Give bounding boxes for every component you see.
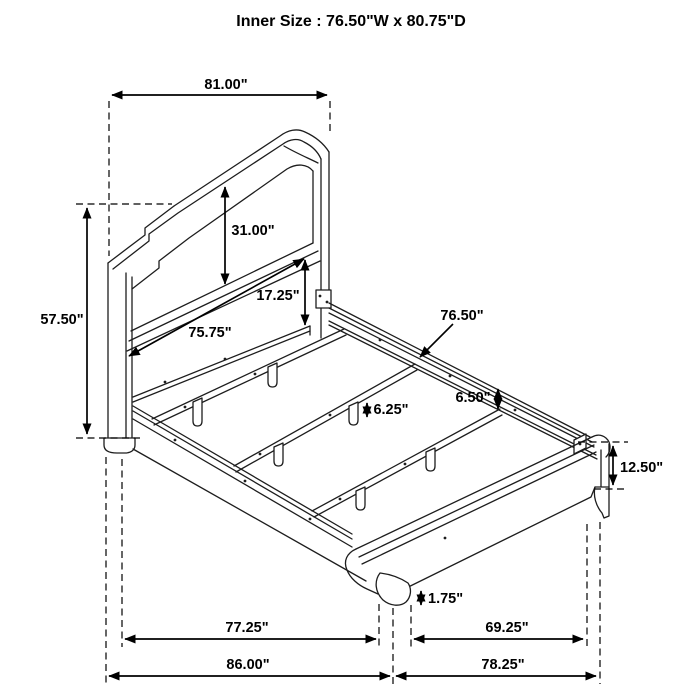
screw-hole <box>244 480 247 483</box>
dim-footboard-outer-width: 78.25" <box>396 657 596 676</box>
footboard-bottom-edge <box>384 487 595 599</box>
leader-line <box>420 324 453 357</box>
rail-cleat-top <box>329 321 596 455</box>
dim-overall-depth: 86.00" <box>109 657 390 676</box>
footboard-right-foot <box>594 487 609 518</box>
diagram-title: Inner Size : 76.50"W x 80.75"D <box>236 13 466 30</box>
screw-hole <box>184 406 187 409</box>
rail-molding <box>133 419 352 547</box>
slat-leg <box>356 487 365 510</box>
dim-inner-depth: 77.25" <box>125 620 376 639</box>
dim-footboard-inner-width: 69.25" <box>414 620 583 639</box>
slat-leg <box>268 363 277 387</box>
dim-label-headboard-height: 57.50" <box>40 312 83 328</box>
dim-label-footboard-inner-width: 69.25" <box>485 620 528 636</box>
slat-leg <box>426 448 435 471</box>
dim-label-headboard-width: 81.00" <box>204 77 247 93</box>
dim-headboard-width: 81.00" <box>109 77 330 256</box>
dim-footboard-height: 12.50" <box>578 442 663 489</box>
dim-label-panel-to-rail: 17.25" <box>256 288 299 304</box>
screw-hole <box>339 498 342 501</box>
dimensions-layer: 81.00" 57.50" 31.00" 17.25" 75.75" 76.50… <box>40 77 663 684</box>
rail-bottom-edge <box>133 449 366 581</box>
dim-foot-height: 1.75" <box>421 591 463 607</box>
screw-hole <box>254 373 257 376</box>
dim-label-panel-height: 31.00" <box>231 223 274 239</box>
dim-label-leg-height: 6.25" <box>373 402 408 418</box>
footboard-top-edge <box>356 437 592 549</box>
headboard-outline <box>108 206 174 263</box>
screw-hole <box>259 453 262 456</box>
dim-label-inner-depth: 77.25" <box>225 620 268 636</box>
slat-bottom <box>236 370 417 472</box>
dim-panel-to-rail: 17.25" <box>256 260 305 325</box>
dim-rail-length: 75.75" <box>129 259 304 356</box>
screw-hole <box>379 339 382 342</box>
screw-hole <box>449 375 452 378</box>
headboard-panel-bottom <box>131 243 313 331</box>
footboard-molding <box>359 445 594 557</box>
bed-dimension-diagram: Inner Size : 76.50"W x 80.75"D <box>0 0 700 700</box>
slat-top <box>312 409 500 511</box>
dim-label-inner-width: 76.50" <box>440 308 483 324</box>
screw-hole <box>174 439 177 442</box>
rail-molding <box>329 308 592 442</box>
headboard-crown-mid <box>113 140 321 269</box>
rail-molding <box>133 411 352 539</box>
screw-hole <box>309 518 312 521</box>
screw-hole <box>444 537 447 540</box>
dim-leg-height: 6.25" <box>367 402 409 418</box>
footboard-molding <box>362 452 596 564</box>
dim-label-footboard-outer-width: 78.25" <box>481 657 524 673</box>
slat-leg <box>349 402 358 425</box>
screw-hole <box>329 414 332 417</box>
screw-hole <box>579 443 582 446</box>
rail-molding <box>329 313 594 447</box>
footboard <box>345 434 610 605</box>
screw-hole <box>404 463 407 466</box>
slat-bottom <box>154 335 346 425</box>
rail-bracket <box>316 290 331 308</box>
dim-label-foot-height: 1.75" <box>428 591 463 607</box>
slat-leg <box>193 398 202 426</box>
bed-frame-drawing <box>104 130 610 605</box>
slat-leg <box>274 443 283 466</box>
dim-label-rail-length: 75.75" <box>188 325 231 341</box>
dimension-line <box>129 259 304 356</box>
headboard-left-foot <box>104 438 135 453</box>
dim-inner-width: 76.50" <box>420 308 484 357</box>
screw-hole <box>164 381 167 384</box>
head-rail-bottom <box>133 331 310 402</box>
dim-panel-height: 31.00" <box>225 187 275 284</box>
screw-hole-dots <box>164 339 582 540</box>
bracket-hole <box>326 301 329 304</box>
bottom-extension-lines <box>106 457 600 684</box>
side-rail-front <box>133 406 366 581</box>
dim-label-footboard-height: 12.50" <box>620 460 663 476</box>
screw-hole <box>514 409 517 412</box>
footboard-left-foot <box>376 573 410 605</box>
screw-hole <box>224 358 227 361</box>
slat-top <box>152 329 344 419</box>
dim-label-rail-height: 6.50" <box>455 390 490 406</box>
dim-label-overall-depth: 86.00" <box>226 657 269 673</box>
bracket-hole <box>319 295 322 298</box>
